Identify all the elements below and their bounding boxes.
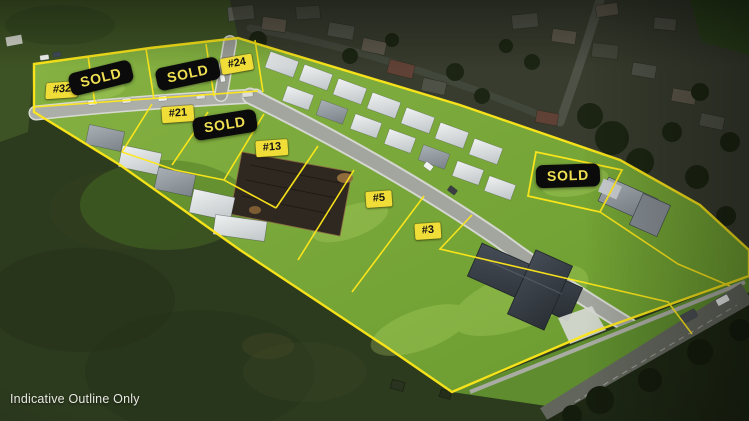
lot-label-21: #21 <box>161 105 194 123</box>
sold-badge-4: SOLD <box>536 163 601 189</box>
watermark-text: Indicative Outline Only <box>10 392 140 406</box>
aerial-photo: #32 #24 #21 #13 #5 #3 SOLD SOLD SOLD SOL… <box>0 0 749 421</box>
lot-label-13: #13 <box>255 139 288 157</box>
lot-label-3: #3 <box>414 222 441 240</box>
lot-label-5: #5 <box>365 190 392 208</box>
